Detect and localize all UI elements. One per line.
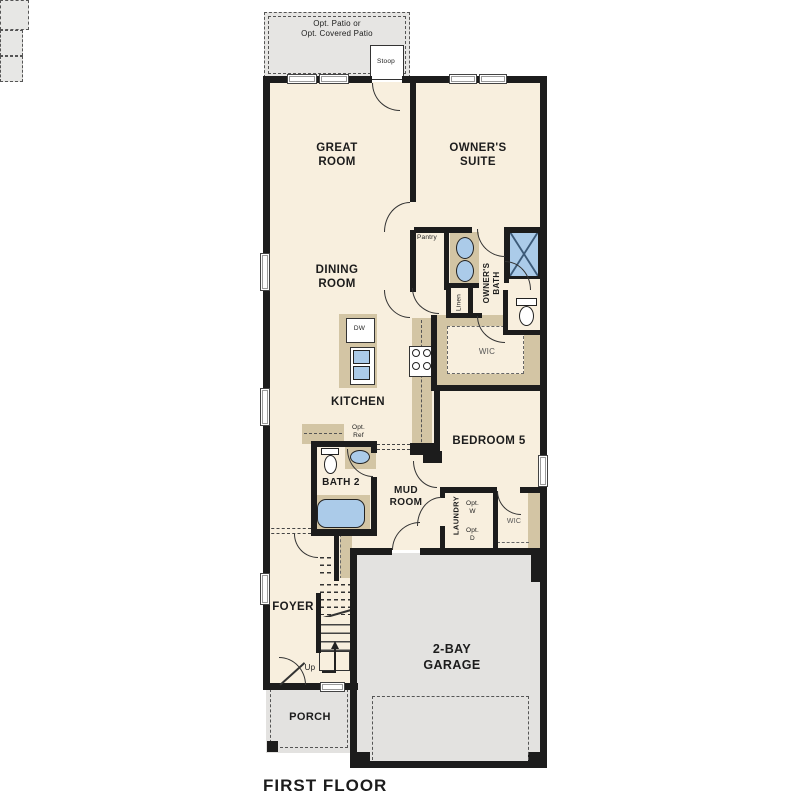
porch-post — [267, 741, 278, 752]
wall-top-left — [263, 76, 372, 83]
optional-refrigerator — [0, 0, 29, 30]
wall-bedroom5-bottom-b — [520, 487, 541, 493]
window — [538, 455, 548, 487]
kitchen-counter-right — [412, 318, 432, 454]
wall-greatroom-suite — [410, 80, 416, 202]
wall-dining-hall — [410, 230, 416, 292]
toilet-icon — [321, 448, 339, 455]
wall-vanity-bottom — [449, 283, 479, 288]
wall-laundry-wic2 — [493, 491, 498, 553]
wall-mud-laundry-b — [440, 526, 445, 553]
bathtub-icon — [317, 499, 365, 528]
garage-door-outline — [372, 696, 529, 760]
dishwasher-icon — [346, 318, 375, 343]
stairs-up-arrow-shaft — [334, 648, 336, 673]
cased-opening — [377, 444, 410, 450]
wall-toiletroom-bottom — [503, 330, 541, 335]
window — [479, 74, 507, 84]
stove-burner — [412, 349, 420, 357]
optional-washer — [0, 30, 23, 56]
toilet-icon — [519, 306, 534, 326]
stairs-up-arrow-base — [322, 671, 336, 673]
window — [260, 253, 270, 291]
wall-garage-top-a — [350, 548, 392, 555]
wall-bedroom5-bottom-a — [440, 487, 497, 493]
vanity-sink-icon — [456, 260, 474, 282]
toilet-icon — [516, 298, 537, 306]
wall-bath2-left — [311, 441, 317, 536]
wall-wic-bottom — [431, 385, 541, 391]
plan-title: FIRST FLOOR — [263, 775, 473, 797]
wall-suite-bottom-b — [504, 227, 541, 233]
window — [287, 74, 317, 84]
window — [260, 388, 270, 426]
wall-pantry-right — [444, 233, 449, 290]
stove-burner — [423, 362, 431, 370]
stove-burner — [412, 362, 420, 370]
wall-bath2-top — [311, 441, 377, 447]
window — [449, 74, 477, 84]
window — [320, 682, 345, 692]
toilet-icon — [324, 455, 337, 474]
wall-right — [540, 76, 547, 768]
wall-suite-bottom-a — [414, 227, 472, 233]
counter-left-centerline — [304, 433, 342, 434]
garage-corner-return — [531, 553, 541, 582]
stove-burner — [423, 349, 431, 357]
wall-closet-left — [334, 529, 339, 581]
wall-bath2-right-b — [371, 477, 377, 536]
porch-area — [266, 687, 352, 753]
wall-garage-left — [350, 548, 357, 768]
optional-dryer — [0, 56, 23, 82]
stoop-area — [370, 45, 404, 80]
floor-plan: Opt. Patio or Opt. Covered Patio Stoop G… — [0, 0, 810, 810]
island-sink-basin-top — [353, 350, 370, 364]
wall-wic-left — [431, 315, 437, 390]
wall-stair-left — [316, 593, 321, 653]
vanity-sink-icon — [456, 237, 474, 259]
garage-corner-notch — [357, 752, 370, 762]
island-sink-basin-bottom — [353, 366, 370, 380]
window — [319, 74, 349, 84]
counter-right-centerline — [421, 320, 422, 452]
garage-corner-notch — [528, 752, 541, 762]
wall-garage-bottom — [350, 761, 547, 768]
window — [260, 573, 270, 605]
